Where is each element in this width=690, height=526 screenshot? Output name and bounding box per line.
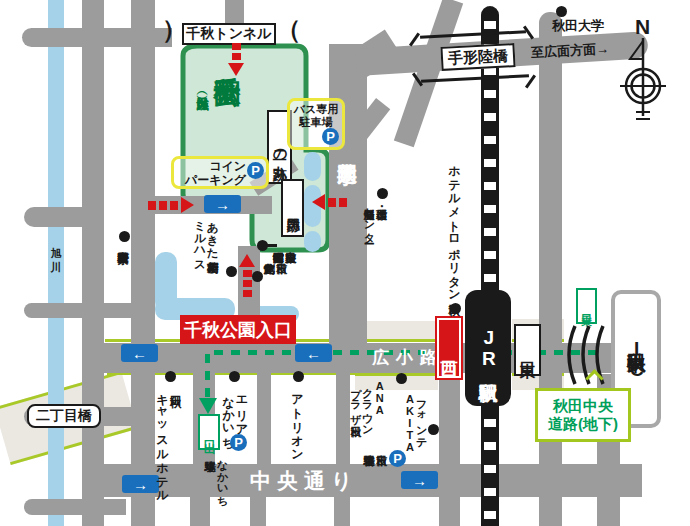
senshu-tunnel-text: 千秋トンネル — [186, 25, 271, 43]
jr-akita-station: JR秋田駅 — [465, 290, 511, 406]
road-vertical-west2 — [131, 0, 155, 526]
underground-exit-sign: 出口 — [198, 414, 220, 450]
nakaichi-parking-label: なかいち 駐車場 — [204, 452, 229, 526]
coin-parking-p-icon: P — [247, 162, 264, 179]
road-vertical-west1 — [82, 0, 104, 526]
underground-route-turn — [205, 354, 210, 398]
oneway-sign-right-chuodori-east: → — [401, 471, 438, 489]
poi-dot-bunka-sozokan — [252, 271, 263, 282]
ride-entrance-sign: 乗口 — [576, 288, 597, 324]
poi-dot-area-nakaichi — [229, 371, 240, 382]
road-stub-river1 — [24, 207, 86, 227]
tegata-overpass-label: 手形陸橋 — [440, 43, 515, 71]
akita-station-senshu-park-map: ） 千秋トンネル （ 千秋公園 （久保田城跡） 二の丸跡 黒門跡 バス専用 駐車… — [0, 0, 690, 526]
public-parking-p-icon: P — [389, 450, 406, 467]
hirokoji-label: 広小路 — [372, 346, 444, 369]
poi-dot-akita-university — [556, 6, 567, 17]
underground-road-label: 秋田中央 道路(地下) — [548, 397, 618, 433]
milhas-label: あきた芸術劇場 ミルハス — [193, 213, 219, 303]
road-vertical-f — [439, 372, 460, 526]
tegata-overpass-text: 手形陸橋 — [448, 46, 509, 68]
road-diagonal-northeast — [394, 0, 463, 147]
public-parking-label: 秋田市 公営駐車場 — [363, 446, 388, 526]
compass-north: N — [610, 14, 676, 132]
akita-university-label: 秋田大学 — [552, 17, 604, 35]
junkanki-center-label: 循環器・ 脳脊髄センター — [363, 200, 388, 296]
poi-dot-junkanki-center — [377, 188, 388, 199]
west-exit-sign: 西口 — [435, 316, 463, 380]
akita-chuo-ic-label: 秋田中央IC — [626, 338, 647, 380]
senshu-tunnel-label: 千秋トンネル — [182, 23, 276, 45]
moat-pond — [304, 231, 321, 252]
underground-route-arrow — [199, 398, 217, 414]
compass-n-letter: N — [635, 15, 650, 38]
ana-crowne-label: ANA クラウン プラザ秋田 — [349, 380, 385, 446]
fonte-akita-label: フォンテ AKITA — [403, 393, 427, 457]
atorion-label: アトリオン — [290, 386, 303, 456]
road-stub-south3 — [334, 497, 350, 526]
bus-parking-box: バス専用 駐車場 P — [287, 98, 345, 150]
moat-pond — [304, 152, 321, 181]
ninomaru-text: 二の丸跡 — [272, 139, 288, 155]
sidewalk-west-north — [355, 321, 438, 342]
poi-dot-hotel-metropolitan — [450, 303, 461, 314]
kuromon-ruins-label: 黒門跡 — [281, 179, 304, 237]
poi-dot-castle-hotel — [165, 371, 176, 382]
railway-south — [481, 404, 499, 526]
underground-road-sign: 秋田中央 道路(地下) — [535, 388, 631, 442]
oneway-sign-left-hirokoji-west: ← — [121, 344, 158, 362]
poi-dot-ana-crowne — [396, 373, 407, 384]
chuo-dori-label: 中央通り — [250, 467, 359, 495]
oneway-sign-right-chuodori-west: → — [122, 475, 159, 493]
coin-parking-label: コイン パーキング — [178, 160, 246, 188]
oneway-sign-right-park: → — [204, 195, 241, 213]
poi-dot-atorion — [293, 371, 304, 382]
road-tunnel-west — [22, 28, 172, 47]
road-vertical-east — [539, 12, 562, 526]
asahikawa-label: 旭川 — [50, 238, 62, 294]
hotel-metropolitan-label: ホテルメトロポリタン秋田 — [447, 158, 460, 304]
road-vertical-e — [336, 346, 350, 468]
poi-dot-police — [119, 231, 130, 242]
bus-parking-p-icon: P — [322, 128, 339, 145]
nakaichi-parking-p-icon: P — [230, 434, 247, 451]
road-vertical-d — [257, 346, 271, 468]
oneway-sign-left-hirokoji-mid: ← — [295, 344, 332, 362]
nichome-bridge-label: 二丁目橋 — [27, 404, 101, 428]
otemon-dori-label: 大手門通り — [336, 148, 358, 318]
nichome-bridge-text: 二丁目橋 — [36, 407, 92, 425]
bunka-sozokan-label: 秋田市 文化創造館 — [263, 254, 288, 340]
route-arrow-west-entry — [148, 197, 194, 213]
poi-dot-milhas — [226, 266, 237, 277]
police-label: 秋田中央警察署 — [116, 243, 129, 337]
castle-hotel-label: 秋田 キャッスルホテル — [155, 386, 182, 502]
bus-parking-label: バス専用 駐車場 — [292, 103, 340, 129]
road-stub-southwest — [24, 499, 126, 515]
route-arrow-from-tunnel — [228, 43, 244, 76]
tunnel-portal-right: （ — [276, 13, 301, 46]
jr-akita-station-label: JR秋田駅 — [478, 327, 499, 369]
poi-dot-fonte — [428, 424, 439, 435]
east-exit-sign: 東口 — [514, 324, 541, 376]
coin-parking-box: コイン パーキング P — [171, 156, 269, 189]
road-stub-south2 — [250, 497, 266, 526]
